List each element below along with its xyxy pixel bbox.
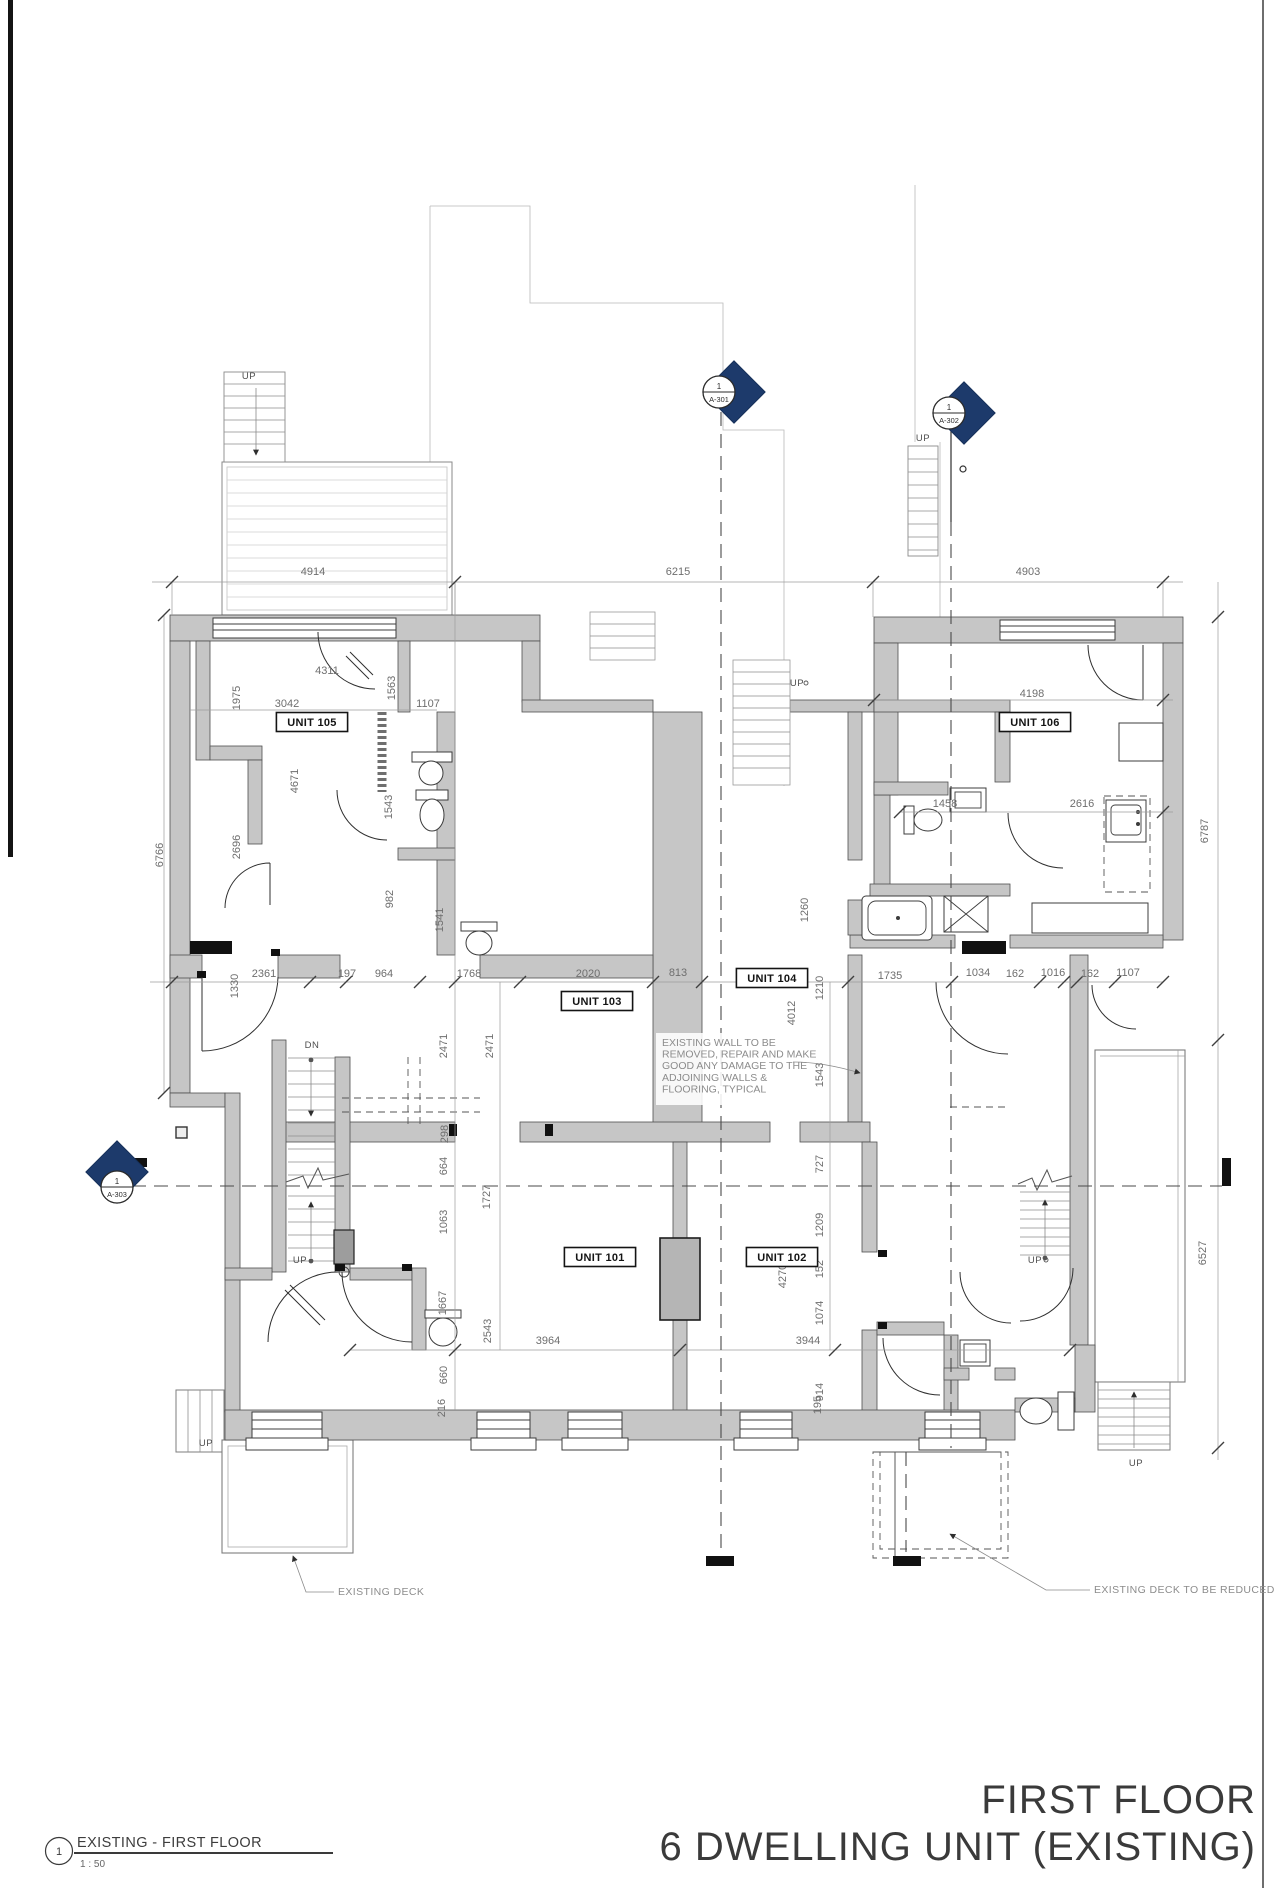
stair-top-right bbox=[908, 446, 938, 556]
dimension-text: 3042 bbox=[275, 698, 299, 710]
dimension-text: 2361 bbox=[252, 968, 276, 980]
dimension-text: 1209 bbox=[814, 1213, 826, 1237]
stair-direction-label: UP bbox=[242, 371, 256, 382]
note-line: REMOVED, REPAIR AND MAKE bbox=[662, 1049, 816, 1061]
dimension-text: 4914 bbox=[301, 566, 325, 578]
dimension-text: 162 bbox=[1081, 968, 1099, 980]
wall-removal-note: EXISTING WALL TO BEREMOVED, REPAIR AND M… bbox=[662, 1037, 816, 1095]
dimension-text: 6527 bbox=[1197, 1241, 1209, 1265]
dimension-text: 2471 bbox=[484, 1034, 496, 1058]
dimension-text: 1543 bbox=[383, 795, 395, 819]
dimension-text: 1063 bbox=[438, 1210, 450, 1234]
stair-direction-label: UP bbox=[293, 1255, 307, 1266]
toilet-103 bbox=[466, 931, 492, 955]
note-line: EXISTING WALL TO BE bbox=[662, 1037, 776, 1049]
deck-right-leader bbox=[950, 1534, 1090, 1590]
dimension-text: 1107 bbox=[1116, 967, 1140, 979]
dimension-text: 727 bbox=[814, 1155, 826, 1173]
dimension-text: 1107 bbox=[416, 698, 440, 710]
dimension-text: 4012 bbox=[786, 1001, 798, 1025]
unit-label-text: UNIT 103 bbox=[572, 996, 621, 1008]
floor-plan-canvas: 1 A-301 1 A-302 1 A-303 EXISTING WALL TO… bbox=[0, 0, 1280, 1888]
dimension-text: 2543 bbox=[482, 1319, 494, 1343]
dimension-text: 4671 bbox=[289, 769, 301, 793]
wall-box bbox=[176, 1127, 187, 1138]
unit-label-text: UNIT 105 bbox=[287, 717, 336, 729]
deck-left-leader bbox=[293, 1556, 334, 1592]
stair-deck-bottom-right bbox=[1098, 1382, 1170, 1450]
dimension-text: 6215 bbox=[666, 566, 690, 578]
sink-round-105 bbox=[419, 761, 443, 785]
dimension-text: 4903 bbox=[1016, 566, 1040, 578]
dimension-text: 197 bbox=[338, 968, 356, 980]
viewport-title[interactable]: 1 EXISTING - FIRST FLOOR 1 : 50 bbox=[46, 1835, 334, 1870]
unit-label-unit-105[interactable]: UNIT 105 bbox=[276, 713, 347, 732]
sheet-title-line1: FIRST FLOOR bbox=[981, 1778, 1256, 1822]
dimension-text: 1458 bbox=[933, 798, 957, 810]
dimension-text: 982 bbox=[384, 890, 396, 908]
porch-steps-center bbox=[590, 612, 655, 660]
marker-number: 1 bbox=[947, 403, 952, 412]
section-marker-a301[interactable]: 1 A-301 bbox=[703, 361, 765, 423]
dimension-text: 1330 bbox=[229, 974, 241, 998]
dimension-text: 1975 bbox=[231, 686, 243, 710]
viewport-scale: 1 : 50 bbox=[80, 1859, 105, 1870]
unit-label-unit-101[interactable]: UNIT 101 bbox=[564, 1248, 635, 1267]
viewport-name: EXISTING - FIRST FLOOR bbox=[77, 1835, 262, 1851]
note-line: GOOD ANY DAMAGE TO THE bbox=[662, 1060, 807, 1072]
water-heater bbox=[334, 1230, 354, 1264]
counter-104 bbox=[962, 941, 1006, 954]
section-marker-a303[interactable]: 1 A-303 bbox=[86, 1141, 148, 1203]
marker-number: 1 bbox=[115, 1177, 120, 1186]
toilet-105 bbox=[420, 799, 444, 831]
toilet-tank-102 bbox=[1058, 1392, 1074, 1430]
note-line: FLOORING, TYPICAL bbox=[662, 1083, 766, 1095]
sheet-border-left bbox=[8, 0, 13, 857]
drawing-sheet: 1 A-301 1 A-302 1 A-303 EXISTING WALL TO… bbox=[0, 0, 1280, 1888]
note-line: ADJOINING WALLS & bbox=[662, 1072, 767, 1084]
dimension-text: 1034 bbox=[966, 967, 990, 979]
unit-label-unit-103[interactable]: UNIT 103 bbox=[561, 992, 632, 1011]
dimension-text: 6787 bbox=[1199, 819, 1211, 843]
dimension-text: 1210 bbox=[814, 976, 826, 1000]
sheet-title: FIRST FLOOR 6 DWELLING UNIT (EXISTING) bbox=[660, 1778, 1256, 1869]
deck-bottom-left bbox=[222, 1440, 353, 1553]
dimension-text: 4311 bbox=[315, 665, 339, 677]
toilet-tank-103 bbox=[461, 922, 497, 931]
unit-label-text: UNIT 104 bbox=[747, 973, 797, 985]
dimension-text: 195 bbox=[812, 1396, 824, 1414]
stair-direction-label: UP bbox=[1129, 1458, 1143, 1469]
marker-sheet: A-301 bbox=[709, 395, 729, 404]
sheet-title-line2: 6 DWELLING UNIT (EXISTING) bbox=[660, 1825, 1256, 1869]
dimension-text: 664 bbox=[438, 1157, 450, 1175]
stair-direction-label: DN bbox=[305, 1040, 320, 1051]
marker-sheet: A-302 bbox=[939, 416, 959, 425]
dimension-text: 1016 bbox=[1041, 967, 1065, 979]
deck-right-callout: EXISTING DECK TO BE REDUCED bbox=[1094, 1584, 1275, 1596]
dimension-text: 4270 bbox=[777, 1264, 789, 1288]
stair-right bbox=[1018, 1170, 1072, 1262]
dimension-text: 4198 bbox=[1020, 688, 1044, 700]
stair-direction-label: UP bbox=[199, 1438, 213, 1449]
dimension-text: 2471 bbox=[438, 1034, 450, 1058]
dimension-text: 813 bbox=[669, 967, 687, 979]
unit-label-unit-104[interactable]: UNIT 104 bbox=[736, 969, 807, 988]
toilet-tank-106 bbox=[904, 806, 914, 834]
viewport-number: 1 bbox=[56, 1846, 62, 1858]
fridge-106 bbox=[1119, 723, 1163, 761]
fireplace bbox=[660, 1238, 700, 1320]
deck-top-left bbox=[222, 462, 452, 615]
dimension-text: 1074 bbox=[814, 1301, 826, 1325]
roof-outline bbox=[430, 185, 940, 786]
stair-top-left bbox=[224, 372, 285, 462]
dimension-text: 1667 bbox=[437, 1291, 449, 1315]
dimension-text: 216 bbox=[436, 1399, 448, 1417]
dimension-text: 1541 bbox=[434, 908, 446, 932]
dimension-text: 964 bbox=[375, 968, 393, 980]
stair-direction-label: UP bbox=[790, 678, 804, 689]
unit-label-text: UNIT 101 bbox=[575, 1252, 624, 1264]
deck-right bbox=[1095, 1050, 1185, 1382]
deck-dashed-bottom-right bbox=[873, 1452, 1008, 1558]
island-counter-106 bbox=[1032, 903, 1148, 933]
dimension-text: 660 bbox=[438, 1366, 450, 1384]
dimension-text: 298 bbox=[439, 1125, 451, 1143]
dimension-text: 6766 bbox=[154, 843, 166, 867]
dimension-text: 2696 bbox=[231, 835, 243, 859]
unit-label-unit-106[interactable]: UNIT 106 bbox=[999, 713, 1070, 732]
deck-left-callout: EXISTING DECK bbox=[338, 1586, 424, 1598]
sink-101 bbox=[429, 1318, 457, 1346]
dimension-text: 1260 bbox=[799, 898, 811, 922]
marker-sheet: A-303 bbox=[107, 1190, 127, 1199]
dimension-text: 1735 bbox=[878, 970, 902, 982]
unit-label-unit-102[interactable]: UNIT 102 bbox=[746, 1248, 817, 1267]
dimension-text: 1543 bbox=[814, 1063, 826, 1087]
counter-103 bbox=[190, 941, 232, 954]
section-marker-a302[interactable]: 1 A-302 bbox=[933, 382, 995, 472]
dimension-text: 1727 bbox=[481, 1185, 493, 1209]
unit-label-text: UNIT 106 bbox=[1010, 717, 1059, 729]
dimension-text: 3964 bbox=[536, 1335, 560, 1347]
stair-direction-label: UP bbox=[1028, 1255, 1042, 1266]
dimension-text: 3944 bbox=[796, 1335, 820, 1347]
dimension-text: 162 bbox=[1006, 968, 1024, 980]
marker-number: 1 bbox=[717, 382, 722, 391]
stair-direction-label: UP bbox=[916, 433, 930, 444]
dimension-text: 1563 bbox=[386, 676, 398, 700]
toilet-102 bbox=[1020, 1398, 1052, 1424]
dimension-text: 2616 bbox=[1070, 798, 1094, 810]
dimension-text: 1768 bbox=[457, 968, 481, 980]
unit-label-text: UNIT 102 bbox=[757, 1252, 806, 1264]
dimension-text: 2020 bbox=[576, 968, 600, 980]
